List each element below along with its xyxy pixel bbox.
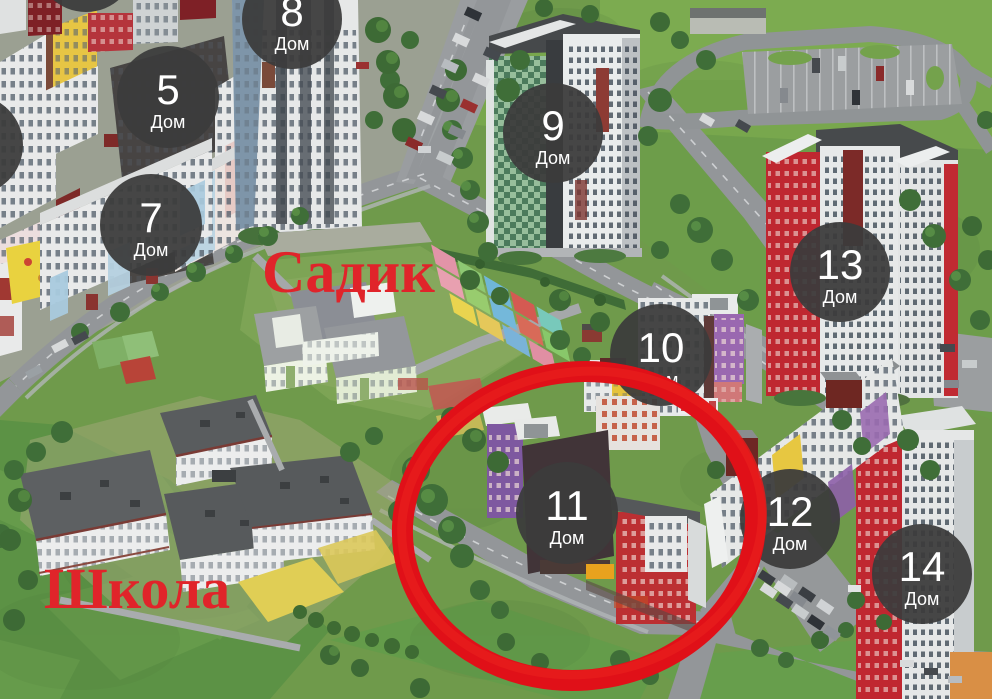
svg-text:Дом: Дом [773, 534, 808, 554]
svg-text:12: 12 [767, 488, 814, 535]
svg-text:7: 7 [139, 194, 162, 241]
svg-text:10: 10 [638, 324, 685, 371]
svg-text:14: 14 [899, 543, 946, 590]
svg-text:8: 8 [280, 0, 303, 35]
svg-text:Дом: Дом [905, 589, 940, 609]
svg-text:5: 5 [156, 66, 179, 113]
svg-text:Дом: Дом [550, 528, 585, 548]
svg-text:Школа: Школа [44, 556, 230, 621]
svg-text:Дом: Дом [536, 148, 571, 168]
svg-text:9: 9 [541, 102, 564, 149]
svg-text:Дом: Дом [823, 287, 858, 307]
svg-text:Садик: Садик [262, 239, 435, 305]
svg-text:13: 13 [817, 241, 864, 288]
svg-text:Дом: Дом [134, 240, 169, 260]
svg-text:11: 11 [545, 482, 589, 529]
svg-text:Дом: Дом [151, 112, 186, 132]
svg-text:Дом: Дом [275, 34, 310, 54]
